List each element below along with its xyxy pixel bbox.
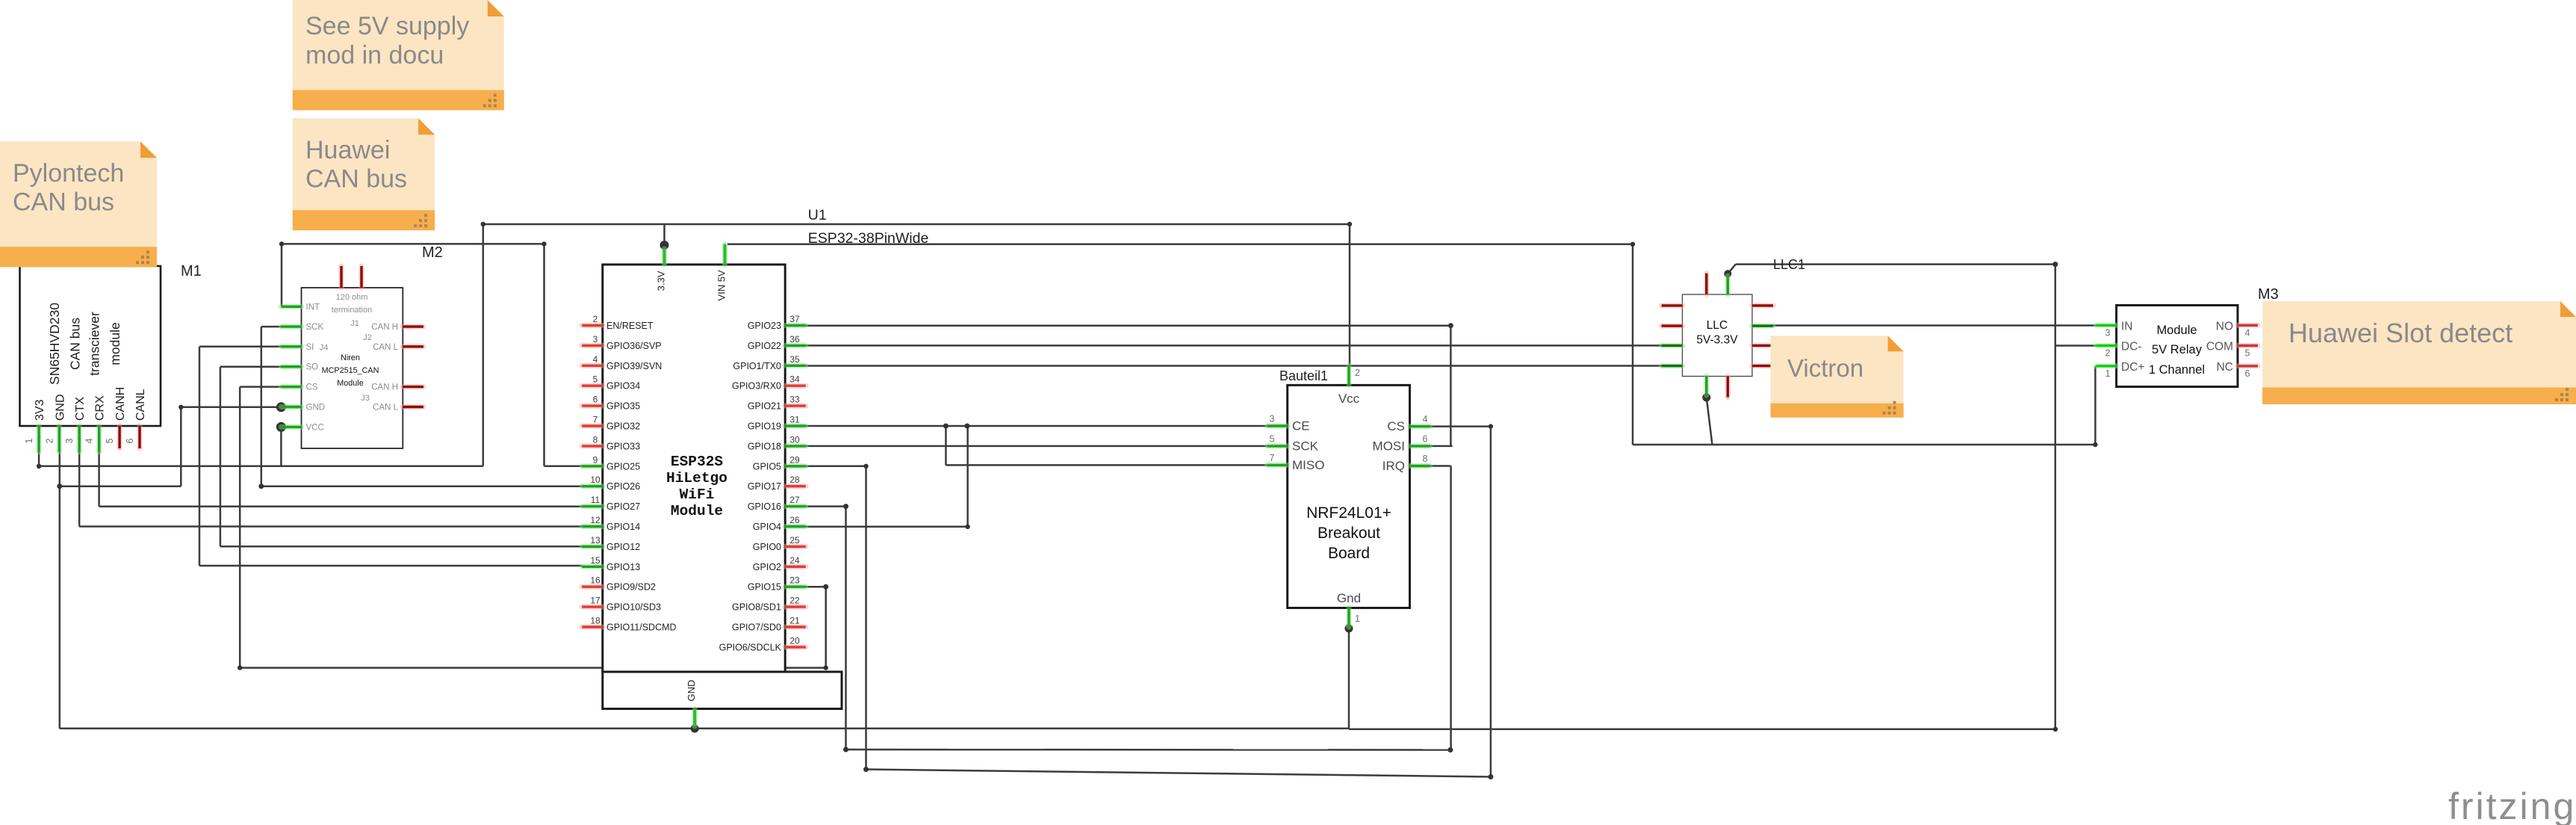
svg-text:NO: NO bbox=[2216, 320, 2233, 333]
svg-text:GPIO16: GPIO16 bbox=[748, 501, 781, 512]
svg-text:See 5V supply: See 5V supply bbox=[305, 12, 469, 40]
svg-text:GPIO7/SD0: GPIO7/SD0 bbox=[732, 622, 781, 633]
svg-text:12: 12 bbox=[590, 515, 600, 525]
svg-text:3: 3 bbox=[2105, 327, 2111, 338]
svg-text:MISO: MISO bbox=[1292, 458, 1324, 472]
svg-text:1: 1 bbox=[24, 438, 34, 443]
svg-text:GPIO1/TX0: GPIO1/TX0 bbox=[733, 361, 781, 371]
svg-text:module: module bbox=[108, 322, 122, 365]
svg-text:5: 5 bbox=[1270, 433, 1275, 444]
svg-text:Huawei: Huawei bbox=[305, 136, 390, 164]
svg-text:7: 7 bbox=[593, 415, 598, 425]
svg-text:34: 34 bbox=[789, 374, 800, 385]
svg-text:6: 6 bbox=[593, 395, 598, 405]
svg-text:transciever: transciever bbox=[87, 312, 102, 376]
svg-text:GPIO19: GPIO19 bbox=[748, 421, 781, 432]
svg-text:CAN bus: CAN bus bbox=[305, 165, 407, 194]
svg-text:J4: J4 bbox=[320, 343, 329, 352]
svg-text:GPIO33: GPIO33 bbox=[606, 441, 640, 451]
svg-text:3.3V: 3.3V bbox=[656, 271, 667, 291]
svg-text:1: 1 bbox=[2105, 368, 2111, 379]
svg-text:J3: J3 bbox=[361, 394, 370, 403]
svg-text:GPIO9/SD2: GPIO9/SD2 bbox=[606, 582, 656, 593]
svg-text:28: 28 bbox=[789, 475, 800, 485]
svg-text:LLC: LLC bbox=[1707, 319, 1728, 332]
svg-text:GPIO25: GPIO25 bbox=[606, 461, 640, 472]
svg-text:2: 2 bbox=[1355, 368, 1360, 378]
svg-text:J2: J2 bbox=[363, 333, 372, 342]
svg-text:2: 2 bbox=[593, 314, 598, 324]
svg-text:22: 22 bbox=[789, 596, 800, 606]
svg-text:1 Channel: 1 Channel bbox=[2149, 363, 2205, 377]
svg-text:EN/RESET: EN/RESET bbox=[606, 321, 654, 331]
svg-text:WiFi: WiFi bbox=[680, 486, 715, 503]
svg-text:21: 21 bbox=[789, 616, 800, 626]
svg-text:30: 30 bbox=[789, 434, 800, 445]
svg-text:2: 2 bbox=[2105, 348, 2111, 359]
svg-text:GPIO34: GPIO34 bbox=[606, 381, 640, 392]
svg-text:9: 9 bbox=[593, 454, 598, 465]
svg-text:GPIO2: GPIO2 bbox=[753, 562, 781, 572]
svg-text:GND: GND bbox=[54, 394, 66, 421]
svg-text:INT: INT bbox=[306, 303, 320, 312]
svg-text:GPIO8/SD1: GPIO8/SD1 bbox=[732, 602, 781, 613]
svg-text:GPIO26: GPIO26 bbox=[606, 481, 640, 492]
svg-text:J1: J1 bbox=[350, 319, 359, 328]
svg-text:7: 7 bbox=[1270, 453, 1275, 463]
svg-text:3: 3 bbox=[64, 438, 75, 443]
svg-text:ESP32-38PinWide: ESP32-38PinWide bbox=[808, 230, 929, 247]
svg-text:GPIO5: GPIO5 bbox=[753, 461, 781, 472]
svg-text:29: 29 bbox=[789, 454, 800, 465]
svg-text:GPIO3/RX0: GPIO3/RX0 bbox=[732, 381, 781, 392]
svg-text:Board: Board bbox=[1328, 545, 1370, 562]
svg-text:GPIO39/SVN: GPIO39/SVN bbox=[606, 361, 662, 371]
svg-text:VCC: VCC bbox=[306, 423, 324, 432]
svg-text:31: 31 bbox=[789, 415, 800, 425]
svg-text:35: 35 bbox=[789, 354, 800, 365]
svg-text:U1: U1 bbox=[808, 207, 827, 223]
svg-text:Breakout: Breakout bbox=[1318, 525, 1380, 542]
svg-text:ESP32S: ESP32S bbox=[671, 454, 724, 470]
svg-text:Vcc: Vcc bbox=[1338, 392, 1360, 406]
svg-text:COM: COM bbox=[2206, 341, 2233, 353]
svg-text:8: 8 bbox=[593, 434, 598, 445]
svg-text:GPIO15: GPIO15 bbox=[748, 582, 781, 593]
svg-text:Bauteil1: Bauteil1 bbox=[1279, 368, 1328, 383]
svg-text:GPIO22: GPIO22 bbox=[748, 341, 781, 351]
svg-text:Module: Module bbox=[2156, 324, 2197, 337]
svg-text:6: 6 bbox=[2245, 368, 2250, 379]
svg-text:fritzing: fritzing bbox=[2448, 785, 2576, 825]
svg-text:3: 3 bbox=[1270, 414, 1275, 424]
svg-text:13: 13 bbox=[590, 535, 600, 546]
svg-text:120 ohm: 120 ohm bbox=[336, 293, 368, 302]
svg-text:8: 8 bbox=[1423, 454, 1428, 464]
svg-text:GND: GND bbox=[686, 680, 697, 702]
svg-text:MCP2515_CAN: MCP2515_CAN bbox=[322, 366, 379, 375]
svg-text:SN65HVD230: SN65HVD230 bbox=[47, 303, 62, 385]
svg-text:GPIO36/SVP: GPIO36/SVP bbox=[606, 341, 662, 351]
svg-text:11: 11 bbox=[591, 495, 600, 505]
svg-text:10: 10 bbox=[590, 475, 600, 485]
svg-text:5: 5 bbox=[593, 374, 598, 385]
svg-text:Module: Module bbox=[337, 379, 363, 388]
svg-text:CAN bus: CAN bus bbox=[13, 188, 114, 217]
svg-text:3: 3 bbox=[593, 334, 598, 344]
svg-text:CAN L: CAN L bbox=[373, 404, 398, 412]
svg-text:4: 4 bbox=[593, 354, 598, 365]
svg-text:NC: NC bbox=[2217, 361, 2233, 374]
svg-text:NRF24L01+: NRF24L01+ bbox=[1306, 504, 1391, 522]
svg-text:4: 4 bbox=[84, 438, 95, 443]
svg-text:DC-: DC- bbox=[2121, 341, 2142, 353]
svg-text:termination: termination bbox=[332, 306, 372, 315]
svg-text:GPIO14: GPIO14 bbox=[606, 522, 640, 532]
svg-text:Gnd: Gnd bbox=[1337, 591, 1361, 605]
svg-text:GPIO13: GPIO13 bbox=[606, 562, 640, 572]
svg-text:23: 23 bbox=[789, 575, 800, 586]
svg-text:GND: GND bbox=[306, 404, 326, 412]
svg-text:16: 16 bbox=[590, 575, 600, 586]
svg-text:M1: M1 bbox=[181, 263, 202, 279]
svg-text:GPIO11/SDCMD: GPIO11/SDCMD bbox=[606, 622, 677, 633]
svg-text:CAN bus: CAN bus bbox=[67, 318, 82, 370]
svg-text:18: 18 bbox=[590, 616, 600, 626]
svg-text:CANH: CANH bbox=[114, 387, 127, 421]
svg-text:GPIO27: GPIO27 bbox=[606, 501, 640, 512]
svg-text:5: 5 bbox=[2245, 348, 2250, 359]
svg-text:CAN H: CAN H bbox=[371, 323, 398, 332]
svg-text:SCK: SCK bbox=[306, 323, 324, 332]
svg-text:M2: M2 bbox=[422, 244, 443, 261]
svg-text:5: 5 bbox=[105, 438, 115, 443]
svg-text:Victron: Victron bbox=[1787, 354, 1863, 382]
svg-text:GPIO32: GPIO32 bbox=[606, 421, 640, 432]
svg-text:CS: CS bbox=[306, 383, 318, 392]
svg-text:6: 6 bbox=[1423, 433, 1428, 444]
svg-text:15: 15 bbox=[590, 555, 600, 566]
svg-text:4: 4 bbox=[1423, 414, 1428, 424]
svg-text:CS: CS bbox=[1387, 419, 1405, 433]
svg-text:GPIO0: GPIO0 bbox=[753, 542, 781, 552]
svg-text:33: 33 bbox=[789, 395, 800, 405]
svg-text:mod in docu: mod in docu bbox=[305, 41, 444, 69]
svg-text:DC+: DC+ bbox=[2121, 361, 2144, 374]
svg-text:Huawei Slot detect: Huawei Slot detect bbox=[2288, 318, 2513, 348]
svg-text:26: 26 bbox=[789, 515, 800, 525]
svg-text:24: 24 bbox=[789, 555, 800, 566]
svg-text:GPIO12: GPIO12 bbox=[606, 542, 640, 552]
svg-text:CANL: CANL bbox=[134, 389, 147, 421]
svg-text:IN: IN bbox=[2121, 320, 2133, 333]
svg-text:LLC1: LLC1 bbox=[1773, 257, 1805, 272]
svg-text:VIN 5V: VIN 5V bbox=[716, 270, 727, 301]
svg-text:25: 25 bbox=[789, 535, 800, 546]
svg-text:SO: SO bbox=[306, 363, 319, 372]
svg-text:37: 37 bbox=[789, 314, 800, 324]
svg-text:GPIO18: GPIO18 bbox=[748, 441, 781, 451]
svg-text:GPIO23: GPIO23 bbox=[748, 321, 781, 331]
svg-text:2: 2 bbox=[44, 438, 55, 443]
svg-text:Pylontech: Pylontech bbox=[13, 159, 124, 188]
svg-text:GPIO6/SDCLK: GPIO6/SDCLK bbox=[719, 642, 782, 652]
svg-text:GPIO10/SD3: GPIO10/SD3 bbox=[606, 602, 661, 613]
svg-text:CAN L: CAN L bbox=[373, 343, 398, 352]
svg-text:36: 36 bbox=[789, 334, 800, 344]
svg-text:4: 4 bbox=[2245, 327, 2250, 338]
svg-text:27: 27 bbox=[789, 495, 800, 505]
svg-text:CRX: CRX bbox=[94, 395, 107, 421]
svg-text:5V-3.3V: 5V-3.3V bbox=[1696, 334, 1738, 347]
svg-text:5V Relay: 5V Relay bbox=[2152, 343, 2203, 356]
svg-text:1: 1 bbox=[1355, 614, 1360, 624]
svg-text:GPIO21: GPIO21 bbox=[748, 401, 781, 412]
svg-text:GPIO4: GPIO4 bbox=[753, 522, 781, 532]
svg-text:20: 20 bbox=[789, 635, 800, 646]
svg-text:IRQ: IRQ bbox=[1382, 459, 1405, 473]
svg-text:Module: Module bbox=[671, 503, 723, 519]
svg-text:SI: SI bbox=[306, 343, 314, 352]
svg-text:HiLetgo: HiLetgo bbox=[666, 470, 727, 486]
svg-text:Niren: Niren bbox=[341, 353, 360, 362]
svg-text:CAN H: CAN H bbox=[371, 383, 398, 392]
svg-text:CE: CE bbox=[1292, 419, 1310, 433]
svg-text:6: 6 bbox=[125, 438, 135, 443]
svg-text:MOSI: MOSI bbox=[1373, 439, 1405, 453]
svg-text:SCK: SCK bbox=[1292, 439, 1319, 453]
svg-text:CTX: CTX bbox=[74, 397, 87, 421]
svg-text:GPIO35: GPIO35 bbox=[606, 401, 640, 412]
svg-text:GPIO17: GPIO17 bbox=[748, 481, 781, 492]
svg-text:17: 17 bbox=[590, 596, 600, 606]
svg-text:M3: M3 bbox=[2258, 286, 2279, 303]
svg-text:3V3: 3V3 bbox=[34, 399, 46, 421]
